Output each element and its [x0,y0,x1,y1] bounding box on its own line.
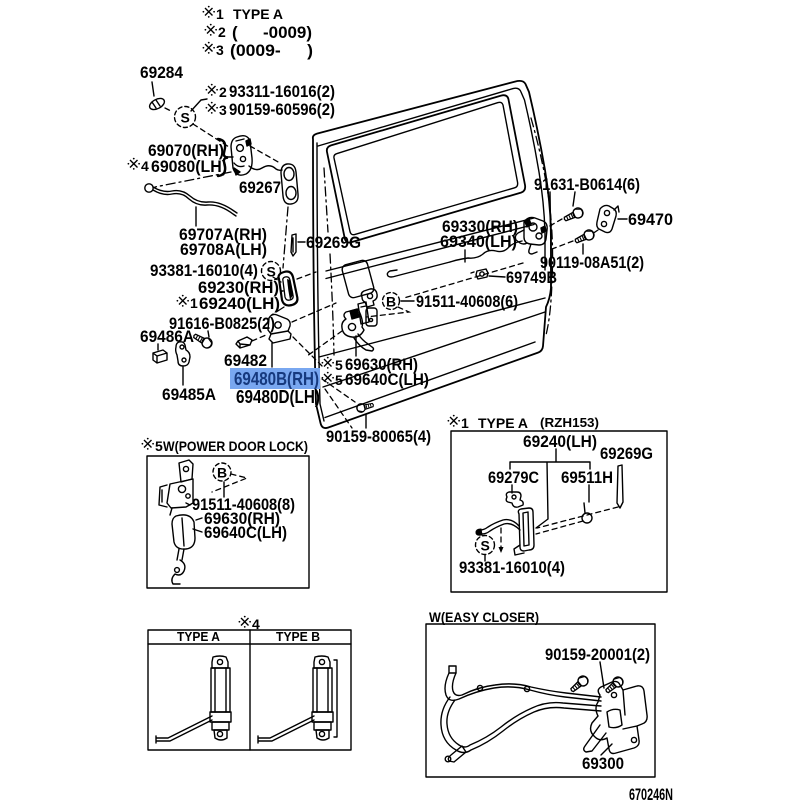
svg-text:69486A: 69486A [140,327,194,346]
svg-text:5: 5 [335,372,343,388]
svg-text:W(POWER DOOR LOCK): W(POWER DOOR LOCK) [163,438,308,454]
svg-text:670246N: 670246N [629,785,673,800]
svg-text:69482: 69482 [224,351,267,370]
svg-text:69300: 69300 [582,754,624,773]
svg-text:69470: 69470 [628,210,673,229]
svg-text:91511-40608(6): 91511-40608(6) [416,293,518,311]
svg-text:4: 4 [141,158,149,174]
svg-text:TYPE A: TYPE A [177,629,221,644]
svg-text:69284: 69284 [140,63,183,82]
svg-text:90159-20001(2): 90159-20001(2) [545,646,650,664]
svg-text:93311-16016(2): 93311-16016(2) [229,83,335,101]
svg-text:S: S [181,110,190,126]
svg-text:5: 5 [335,357,343,373]
svg-text:69080(LH): 69080(LH) [151,157,227,176]
svg-text:69240(LH): 69240(LH) [523,432,597,451]
svg-text:90159-60596(2): 90159-60596(2) [229,101,335,119]
svg-text:TYPE B: TYPE B [276,629,320,644]
svg-text:69279C: 69279C [488,468,539,487]
svg-text:91631-B0614(6): 91631-B0614(6) [534,176,640,194]
svg-text:TYPE A: TYPE A [478,415,528,431]
svg-text:69485A: 69485A [162,385,216,404]
svg-text:93381-16010(4): 93381-16010(4) [459,559,565,577]
svg-text:69240(LH): 69240(LH) [199,294,280,313]
svg-text:1: 1 [461,415,469,431]
svg-text:( -0009): ( -0009) [232,24,312,42]
svg-text:1: 1 [190,295,198,311]
svg-text:TYPE A: TYPE A [233,6,283,22]
svg-text:69480D(LH): 69480D(LH) [236,387,320,407]
svg-text:S: S [481,538,490,554]
svg-text:(RZH153): (RZH153) [540,415,599,430]
svg-text:W(EASY CLOSER): W(EASY CLOSER) [429,609,539,625]
svg-text:69480B(RH): 69480B(RH) [234,369,319,389]
svg-text:69749B: 69749B [506,268,557,287]
svg-text:B: B [217,465,227,481]
svg-text:69267: 69267 [239,178,281,197]
svg-text:2: 2 [219,84,227,100]
svg-text:69269G: 69269G [600,444,653,463]
svg-text:69640C(LH): 69640C(LH) [345,370,429,389]
svg-text:(0009- ): (0009- ) [230,42,313,60]
svg-text:69269G: 69269G [306,233,361,252]
svg-text:90159-80065(4): 90159-80065(4) [326,428,431,446]
svg-text:69640C(LH): 69640C(LH) [204,523,287,542]
svg-text:3: 3 [216,42,224,58]
svg-text:2: 2 [218,24,226,40]
svg-text:69708A(LH): 69708A(LH) [180,240,267,259]
svg-text:69340(LH): 69340(LH) [440,232,517,251]
svg-text:1: 1 [216,6,224,22]
svg-text:B: B [386,294,396,310]
svg-text:3: 3 [219,102,227,118]
svg-text:5: 5 [155,438,163,454]
svg-text:69511H: 69511H [561,468,613,487]
